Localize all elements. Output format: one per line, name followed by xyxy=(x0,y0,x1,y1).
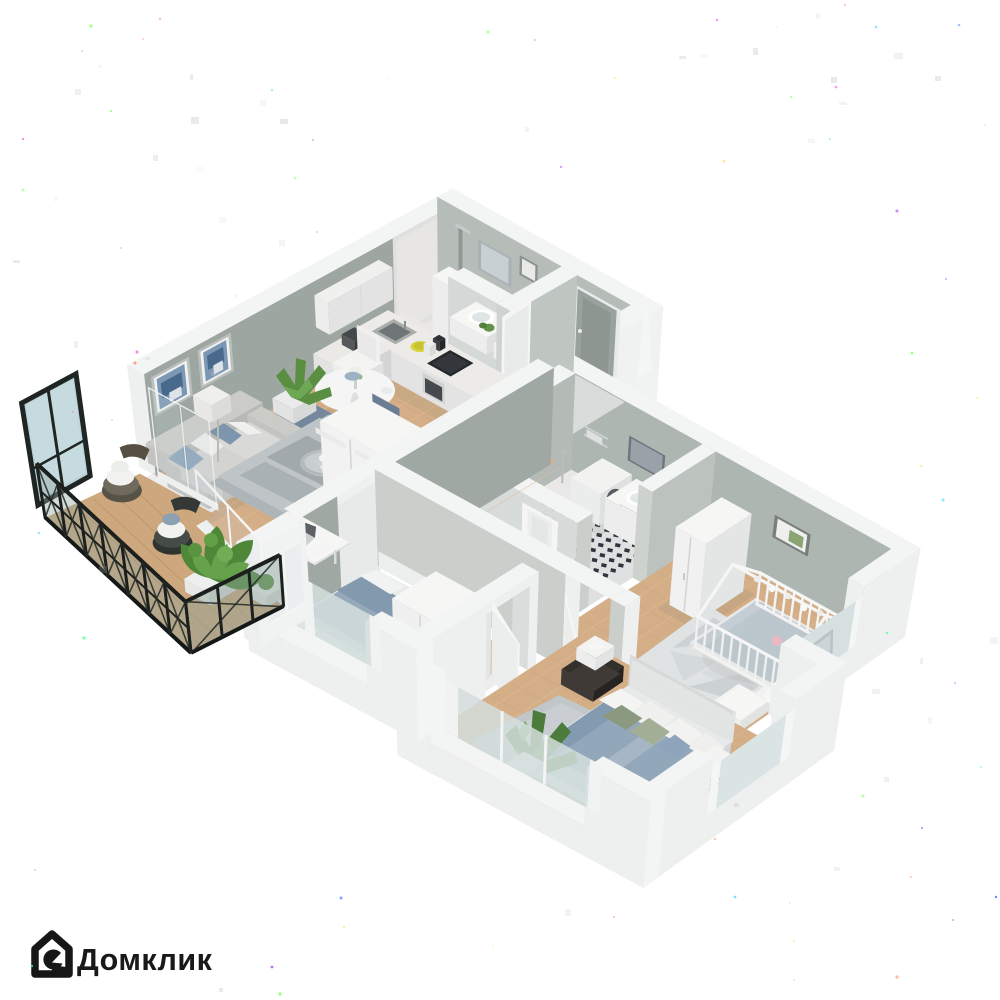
svg-text:Домклик: Домклик xyxy=(77,943,213,977)
